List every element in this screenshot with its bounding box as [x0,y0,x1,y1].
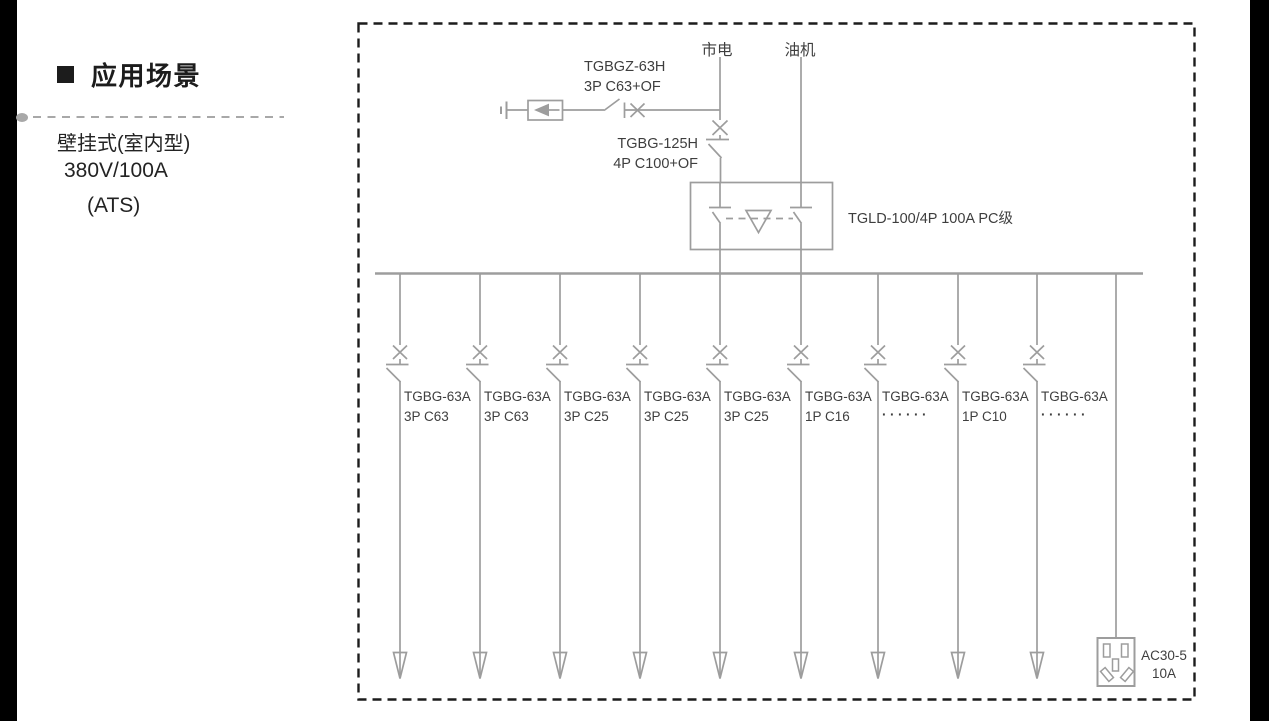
branch-circuit: TGBG-63A 3P C63 [386,274,471,679]
branch-spec: 3P C25 [564,409,609,424]
surge-breaker-spec: 3P C63+OF [584,79,661,95]
branch-model: TGBG-63A [882,389,949,404]
branch-spec: 3P C63 [484,409,529,424]
branch-circuit: TGBG-63A ······ [864,274,949,679]
enclosure-boundary [359,24,1195,700]
breaker-icon [787,346,810,383]
main-breaker-spec: 4P C100+OF [613,156,698,172]
mains-feed [706,57,729,183]
branch-circuit: TGBG-63A 3P C25 [706,274,791,679]
isolator-switch-icon [604,99,645,118]
surge-breaker-model: TGBGZ-63H [584,59,665,75]
breaker-icon [626,346,649,383]
breaker-icon [386,346,409,383]
branch-circuit: TGBG-63A 1P C16 [787,274,872,679]
circuit-diagram: 市电 油机 TGBG-125H 4P C100+OF [0,0,1269,721]
branch-circuit: TGBG-63A ······ [1023,274,1108,679]
branch-model: TGBG-63A [644,389,711,404]
catalog-page: 应用场景 壁挂式(室内型) 380V/100A (ATS) 市电 油机 [0,0,1269,721]
spd-arrester-icon [528,101,563,121]
branch-circuit: TGBG-63A 1P C10 [944,274,1029,679]
branch-model: TGBG-63A [724,389,791,404]
breaker-icon [466,346,489,383]
generator-label: 油机 [784,41,816,59]
socket-model: AC30-5 [1141,648,1187,663]
breaker-icon [944,346,967,383]
branch-model: TGBG-63A [805,389,872,404]
branch-model: TGBG-63A [962,389,1029,404]
branch-model: TGBG-63A [564,389,631,404]
socket-rating: 10A [1152,666,1176,681]
branch-model: TGBG-63A [484,389,551,404]
branch-circuit: TGBG-63A 3P C25 [546,274,631,679]
main-breaker-icon [706,121,729,159]
branch-spec: 1P C16 [805,409,850,424]
breaker-icon [546,346,569,383]
branch-model: TGBG-63A [404,389,471,404]
breaker-icon [864,346,887,383]
branch-circuit: TGBG-63A 3P C63 [466,274,551,679]
ground-icon [501,102,507,120]
branch-spec: 1P C10 [962,409,1007,424]
surge-branch [501,99,720,120]
breaker-icon [1023,346,1046,383]
socket-icon [1098,638,1135,686]
branch-spec: 3P C25 [724,409,769,424]
socket-branch: AC30-5 10A [1098,274,1187,686]
branch-spec: ······ [882,407,930,422]
branch-spec: ······ [1041,407,1089,422]
breaker-icon [706,346,729,383]
branch-spec: 3P C63 [404,409,449,424]
branch-circuit: TGBG-63A 3P C25 [626,274,711,679]
branch-model: TGBG-63A [1041,389,1108,404]
mains-label: 市电 [701,41,732,59]
ats-switch-icon [691,183,833,275]
main-breaker-model: TGBG-125H [617,136,698,152]
branch-spec: 3P C25 [644,409,689,424]
ats-label: TGLD-100/4P 100A PC级 [848,210,1013,227]
